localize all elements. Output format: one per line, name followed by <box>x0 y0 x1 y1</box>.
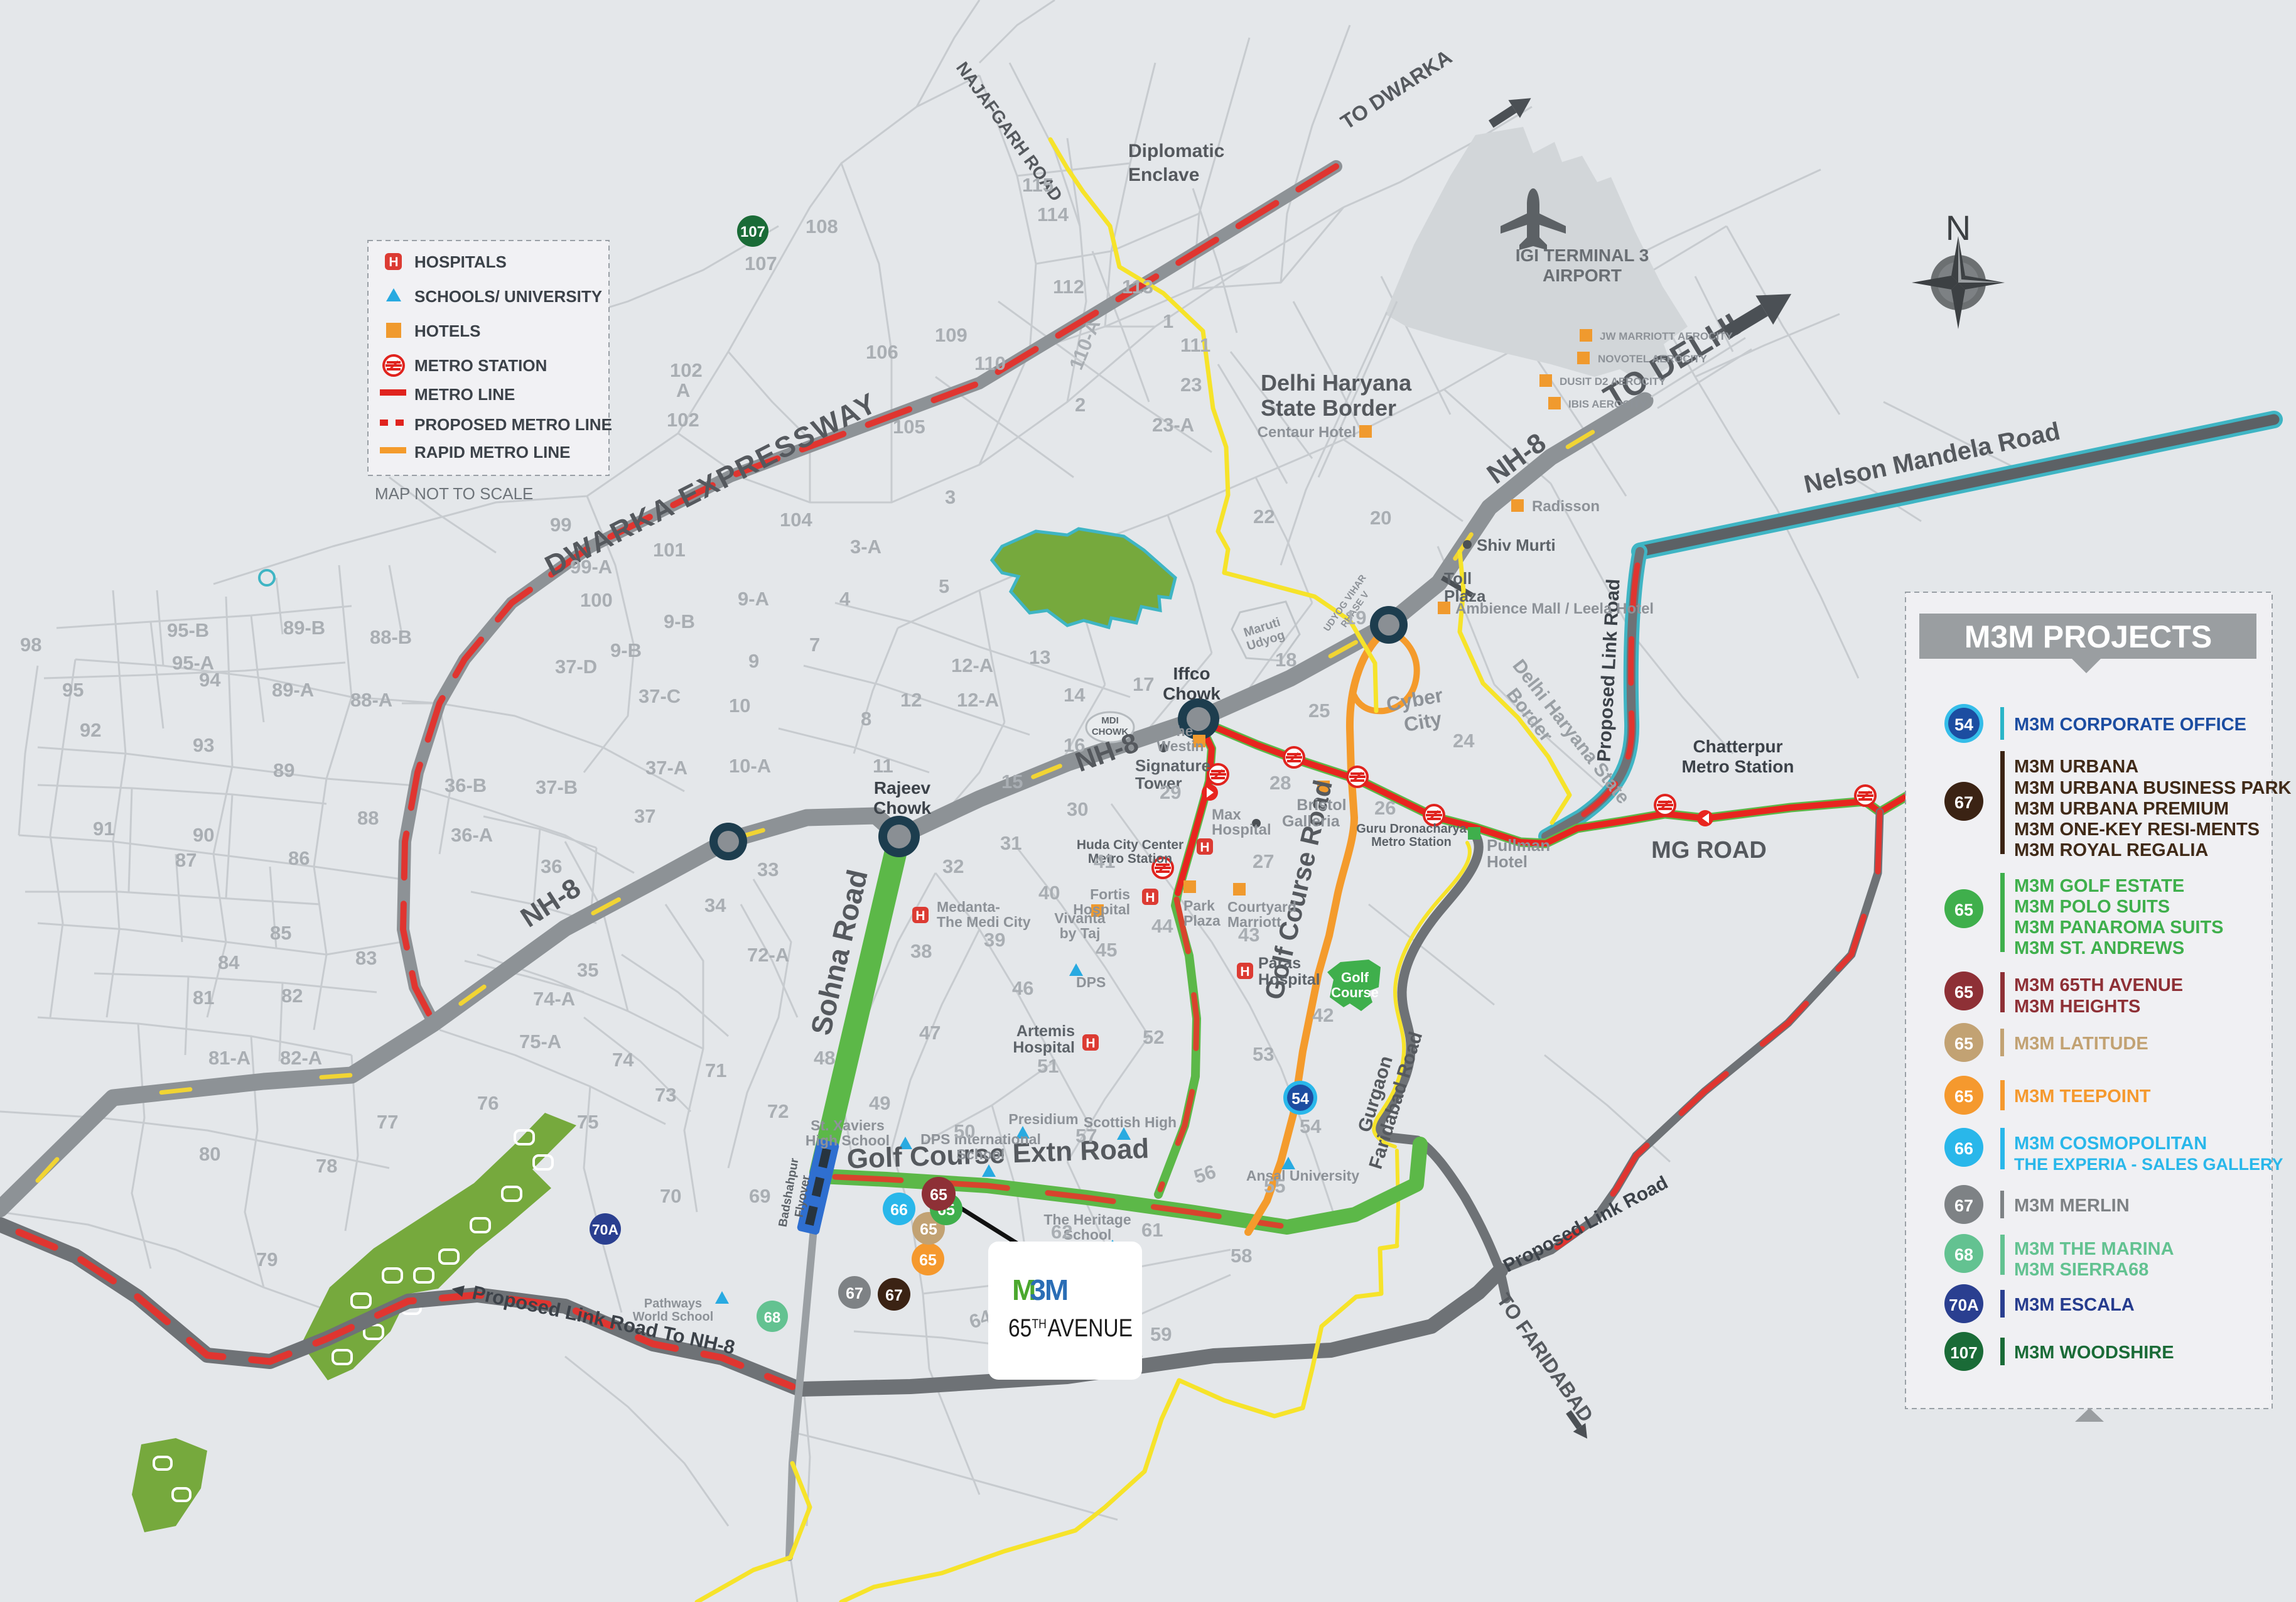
svg-text:37-B: 37-B <box>536 776 578 798</box>
svg-text:8: 8 <box>861 708 871 730</box>
svg-text:33: 33 <box>757 858 779 880</box>
svg-text:20: 20 <box>1370 507 1391 529</box>
svg-text:15: 15 <box>1001 771 1023 793</box>
svg-text:71: 71 <box>705 1059 726 1081</box>
svg-text:PROPOSED METRO LINE: PROPOSED METRO LINE <box>414 415 612 434</box>
svg-text:7: 7 <box>809 634 820 656</box>
svg-text:37-D: 37-D <box>555 656 597 678</box>
svg-text:58: 58 <box>1231 1245 1252 1267</box>
svg-text:34: 34 <box>704 894 726 916</box>
svg-text:51: 51 <box>1037 1055 1059 1077</box>
svg-text:M3M TEEPOINT: M3M TEEPOINT <box>2014 1086 2151 1107</box>
svg-text:113: 113 <box>1122 276 1153 298</box>
svg-text:111: 111 <box>1180 334 1210 356</box>
svg-text:89-B: 89-B <box>283 617 325 639</box>
svg-text:Max: Max <box>1212 806 1241 823</box>
svg-text:52: 52 <box>1143 1026 1164 1048</box>
svg-text:45: 45 <box>1096 939 1117 961</box>
svg-text:MG ROAD: MG ROAD <box>1651 837 1767 863</box>
svg-text:65: 65 <box>1954 1034 1973 1053</box>
svg-text:Radisson: Radisson <box>1532 498 1600 515</box>
svg-text:The: The <box>1168 723 1194 739</box>
svg-text:19: 19 <box>1345 607 1366 629</box>
svg-text:Hospital: Hospital <box>1212 821 1271 838</box>
svg-text:37-C: 37-C <box>639 685 681 707</box>
svg-text:38: 38 <box>910 940 932 962</box>
svg-text:74: 74 <box>612 1049 634 1071</box>
svg-text:62: 62 <box>1051 1221 1072 1243</box>
svg-text:114: 114 <box>1037 203 1069 225</box>
svg-text:102: 102 <box>670 359 703 381</box>
svg-text:M3M: M3M <box>1012 1274 1067 1306</box>
svg-text:70A: 70A <box>592 1221 618 1238</box>
svg-text:88-B: 88-B <box>370 626 412 648</box>
svg-text:87: 87 <box>175 849 197 871</box>
svg-text:Vivanta: Vivanta <box>1054 910 1106 926</box>
svg-text:Hotel: Hotel <box>1487 852 1528 871</box>
svg-text:N: N <box>1946 208 1971 247</box>
svg-text:41: 41 <box>1094 850 1115 872</box>
svg-text:9: 9 <box>748 650 759 672</box>
svg-text:57: 57 <box>1075 1125 1097 1147</box>
svg-text:80: 80 <box>199 1143 220 1165</box>
svg-text:36-A: 36-A <box>451 824 493 846</box>
svg-text:32: 32 <box>942 855 964 877</box>
svg-text:26: 26 <box>1374 797 1396 819</box>
svg-text:Pathways: Pathways <box>644 1297 702 1311</box>
svg-text:M3M COSMOPOLITAN: M3M COSMOPOLITAN <box>2014 1134 2207 1154</box>
svg-text:4: 4 <box>839 588 851 610</box>
svg-text:Centaur Hotel: Centaur Hotel <box>1258 424 1356 441</box>
svg-text:DPS: DPS <box>1076 974 1106 990</box>
svg-text:Westin: Westin <box>1157 738 1204 754</box>
svg-text:M3M LATITUDE: M3M LATITUDE <box>2014 1034 2148 1054</box>
svg-text:Diplomatic: Diplomatic <box>1128 141 1224 161</box>
svg-text:Ansal University: Ansal University <box>1246 1167 1359 1184</box>
svg-text:23: 23 <box>1180 374 1202 396</box>
svg-text:31: 31 <box>1000 832 1021 854</box>
svg-text:IBIS AEROCITY: IBIS AEROCITY <box>1568 398 1647 410</box>
svg-text:84: 84 <box>218 951 240 973</box>
svg-text:101: 101 <box>653 539 686 561</box>
svg-text:HOTELS: HOTELS <box>414 322 480 340</box>
svg-text:72-A: 72-A <box>747 944 789 966</box>
svg-text:24: 24 <box>1453 730 1475 752</box>
svg-text:108: 108 <box>806 215 838 237</box>
svg-text:HOSPITALS: HOSPITALS <box>414 252 507 271</box>
svg-text:65: 65 <box>1954 983 1973 1002</box>
svg-text:Metro Station: Metro Station <box>1371 835 1452 849</box>
svg-text:M3M URBANA PREMIUM: M3M URBANA PREMIUM <box>2014 799 2229 819</box>
svg-text:67: 67 <box>885 1287 903 1304</box>
svg-text:Iffco: Iffco <box>1173 664 1210 683</box>
svg-text:29: 29 <box>1160 781 1181 803</box>
svg-text:The Medi City: The Medi City <box>937 914 1031 930</box>
svg-text:Enclave: Enclave <box>1128 165 1199 185</box>
svg-text:METRO LINE: METRO LINE <box>414 385 515 404</box>
svg-text:Toll: Toll <box>1444 569 1472 588</box>
svg-text:107: 107 <box>745 252 777 274</box>
svg-text:World School: World School <box>633 1310 714 1324</box>
svg-text:115: 115 <box>1022 174 1054 196</box>
svg-text:1: 1 <box>1163 310 1173 332</box>
svg-text:Metro Station: Metro Station <box>1682 757 1794 776</box>
svg-text:72: 72 <box>767 1100 789 1122</box>
svg-text:11: 11 <box>873 755 893 777</box>
svg-text:17: 17 <box>1133 673 1154 695</box>
svg-text:Medanta-: Medanta- <box>937 899 1000 915</box>
svg-text:Scottish High: Scottish High <box>1084 1114 1177 1130</box>
svg-text:109: 109 <box>935 324 967 346</box>
svg-text:Presidium: Presidium <box>1008 1111 1078 1127</box>
svg-text:9-A: 9-A <box>738 588 769 610</box>
svg-text:70A: 70A <box>1949 1296 1979 1314</box>
svg-text:82-A: 82-A <box>280 1047 322 1069</box>
svg-text:SCHOOLS/ UNIVERSITY: SCHOOLS/ UNIVERSITY <box>414 287 602 306</box>
svg-text:85: 85 <box>270 922 291 944</box>
svg-text:90: 90 <box>193 824 214 846</box>
svg-text:106: 106 <box>866 341 898 363</box>
svg-text:36: 36 <box>541 855 562 877</box>
svg-text:M3M ONE-KEY RESI-MENTS: M3M ONE-KEY RESI-MENTS <box>2014 820 2260 840</box>
svg-text:75: 75 <box>577 1111 598 1133</box>
svg-text:M3M PROJECTS: M3M PROJECTS <box>1965 619 2212 654</box>
svg-text:112: 112 <box>1053 276 1084 298</box>
svg-text:78: 78 <box>316 1155 337 1177</box>
svg-text:99: 99 <box>550 514 571 536</box>
svg-text:Paras: Paras <box>1258 955 1301 972</box>
svg-text:Chowk: Chowk <box>1163 684 1221 703</box>
svg-text:93: 93 <box>193 734 214 756</box>
svg-text:25: 25 <box>1308 700 1330 722</box>
svg-text:Rajeev: Rajeev <box>874 778 931 798</box>
svg-text:65: 65 <box>920 1221 937 1238</box>
svg-text:70: 70 <box>660 1185 681 1207</box>
svg-text:89-A: 89-A <box>272 679 314 701</box>
svg-text:88: 88 <box>357 807 379 829</box>
svg-text:Bristol: Bristol <box>1296 796 1346 814</box>
svg-text:46: 46 <box>1012 977 1033 999</box>
svg-text:75-A: 75-A <box>519 1031 561 1053</box>
svg-text:Galleria: Galleria <box>1282 813 1340 830</box>
svg-text:JW MARRIOTT AEROCITY: JW MARRIOTT AEROCITY <box>1600 330 1733 342</box>
svg-text:10: 10 <box>729 695 750 717</box>
svg-text:28: 28 <box>1269 772 1291 794</box>
svg-text:13: 13 <box>1029 646 1050 668</box>
svg-text:9-B: 9-B <box>664 610 695 632</box>
svg-text:81-A: 81-A <box>208 1047 251 1069</box>
svg-text:M3M PANAROMA SUITS: M3M PANAROMA SUITS <box>2014 917 2224 938</box>
svg-text:50: 50 <box>954 1120 975 1142</box>
svg-text:67: 67 <box>1954 1196 1973 1215</box>
svg-text:65: 65 <box>1954 1087 1973 1106</box>
svg-text:MDI: MDI <box>1101 715 1119 726</box>
svg-text:79: 79 <box>256 1248 278 1270</box>
svg-text:9-B: 9-B <box>610 639 642 661</box>
svg-text:65THAVENUE: 65THAVENUE <box>1008 1314 1133 1342</box>
svg-text:THE EXPERIA - SALES GALLERY: THE EXPERIA - SALES GALLERY <box>2014 1155 2283 1174</box>
svg-text:99-A: 99-A <box>570 556 612 578</box>
svg-text:M3M URBANA: M3M URBANA <box>2014 757 2138 777</box>
svg-text:104: 104 <box>780 509 812 531</box>
svg-text:12-A: 12-A <box>957 689 999 711</box>
svg-text:98: 98 <box>20 634 41 656</box>
svg-text:86: 86 <box>288 847 310 869</box>
svg-text:Courtyard: Courtyard <box>1227 899 1296 915</box>
svg-text:83: 83 <box>355 947 377 969</box>
svg-text:M3M GOLF ESTATE: M3M GOLF ESTATE <box>2014 876 2184 896</box>
svg-text:Fortis: Fortis <box>1090 886 1130 902</box>
svg-text:DUSIT D2 AEROCITY: DUSIT D2 AEROCITY <box>1560 376 1666 387</box>
svg-text:Hospital: Hospital <box>1258 971 1320 988</box>
svg-text:AIRPORT: AIRPORT <box>1543 266 1622 285</box>
svg-text:3-A: 3-A <box>850 536 881 558</box>
svg-text:Ambience Mall / Leela Hotel: Ambience Mall / Leela Hotel <box>1455 600 1654 617</box>
svg-text:54: 54 <box>1291 1090 1309 1108</box>
svg-text:53: 53 <box>1253 1043 1274 1065</box>
svg-text:39: 39 <box>984 929 1005 951</box>
svg-text:M3M CORPORATE OFFICE: M3M CORPORATE OFFICE <box>2014 715 2246 735</box>
svg-text:81: 81 <box>193 987 214 1009</box>
svg-text:65: 65 <box>930 1186 947 1204</box>
svg-text:Delhi Haryana: Delhi Haryana <box>1261 370 1412 396</box>
svg-text:12: 12 <box>900 689 922 711</box>
svg-text:54: 54 <box>1300 1115 1322 1137</box>
svg-text:Golf: Golf <box>1341 970 1369 985</box>
svg-text:40: 40 <box>1038 882 1060 904</box>
svg-text:10-A: 10-A <box>729 755 771 777</box>
svg-text:IGI TERMINAL 3: IGI TERMINAL 3 <box>1516 246 1649 265</box>
svg-text:2: 2 <box>1075 394 1086 416</box>
svg-text:Shiv Murti: Shiv Murti <box>1477 536 1556 555</box>
svg-text:18: 18 <box>1275 649 1296 671</box>
svg-text:Artemis: Artemis <box>1016 1022 1075 1040</box>
svg-text:55: 55 <box>1264 1175 1285 1197</box>
svg-text:42: 42 <box>1312 1004 1334 1026</box>
svg-text:RAPID METRO LINE: RAPID METRO LINE <box>414 443 570 462</box>
svg-text:74-A: 74-A <box>533 988 575 1010</box>
svg-text:M3M ESCALA: M3M ESCALA <box>2014 1295 2135 1315</box>
svg-text:Huda City Center: Huda City Center <box>1077 838 1183 852</box>
svg-text:92: 92 <box>80 719 101 741</box>
svg-text:54: 54 <box>1954 715 1973 734</box>
svg-text:37-A: 37-A <box>645 757 687 779</box>
svg-text:M3M WOODSHIRE: M3M WOODSHIRE <box>2014 1343 2174 1363</box>
svg-text:89: 89 <box>273 759 294 781</box>
svg-text:102: 102 <box>667 409 699 431</box>
svg-text:67: 67 <box>846 1285 863 1302</box>
svg-text:95: 95 <box>62 679 84 701</box>
svg-text:43: 43 <box>1238 924 1259 946</box>
svg-text:95-B: 95-B <box>167 619 209 641</box>
svg-text:Chatterpur: Chatterpur <box>1693 737 1782 756</box>
svg-text:M3M POLO SUITS: M3M POLO SUITS <box>2014 897 2170 917</box>
svg-text:27: 27 <box>1253 850 1274 872</box>
svg-text:65: 65 <box>1954 901 1973 919</box>
svg-text:State Border: State Border <box>1261 395 1396 421</box>
svg-text:65: 65 <box>919 1252 937 1269</box>
svg-text:5: 5 <box>939 575 949 597</box>
svg-text:73: 73 <box>655 1084 676 1106</box>
svg-text:Chowk: Chowk <box>873 798 931 818</box>
svg-text:67: 67 <box>1954 793 1973 812</box>
svg-text:M3M ROYAL REGALIA: M3M ROYAL REGALIA <box>2014 840 2208 860</box>
svg-text:110: 110 <box>974 352 1006 374</box>
svg-text:M3M ST. ANDREWS: M3M ST. ANDREWS <box>2014 938 2184 958</box>
svg-text:NOVOTEL AEROCITY: NOVOTEL AEROCITY <box>1598 353 1707 365</box>
svg-text:METRO STATION: METRO STATION <box>414 356 547 375</box>
svg-text:M3M URBANA BUSINESS PARK: M3M URBANA BUSINESS PARK <box>2014 778 2292 798</box>
svg-text:37: 37 <box>634 805 655 827</box>
svg-text:3: 3 <box>945 486 956 508</box>
svg-text:M3M THE MARINA: M3M THE MARINA <box>2014 1239 2174 1259</box>
svg-text:16: 16 <box>1064 734 1085 756</box>
svg-text:DPS International: DPS International <box>920 1131 1041 1147</box>
svg-text:14: 14 <box>1064 684 1086 706</box>
svg-text:76: 76 <box>477 1092 499 1114</box>
svg-text:by Taj: by Taj <box>1060 925 1101 941</box>
svg-text:MAP NOT TO SCALE: MAP NOT TO SCALE <box>375 484 533 503</box>
svg-text:Hospital: Hospital <box>1013 1039 1075 1056</box>
svg-text:105: 105 <box>893 416 925 438</box>
svg-text:Park: Park <box>1183 897 1215 914</box>
svg-text:36-B: 36-B <box>445 774 487 796</box>
svg-text:44: 44 <box>1151 915 1173 937</box>
svg-text:St. Xaviers: St. Xaviers <box>811 1117 885 1134</box>
svg-text:66: 66 <box>1954 1139 1973 1158</box>
svg-text:48: 48 <box>814 1047 835 1069</box>
svg-text:88-A: 88-A <box>350 689 392 711</box>
svg-text:107: 107 <box>1950 1343 1977 1362</box>
svg-text:12-A: 12-A <box>951 654 993 676</box>
svg-text:66: 66 <box>890 1201 908 1219</box>
svg-text:M3M 65TH AVENUE: M3M 65TH AVENUE <box>2014 975 2183 995</box>
svg-text:94: 94 <box>199 669 221 691</box>
svg-text:A: A <box>676 379 690 401</box>
svg-text:22: 22 <box>1253 506 1275 528</box>
svg-text:61: 61 <box>1141 1219 1163 1241</box>
svg-text:68: 68 <box>1954 1245 1973 1264</box>
svg-text:91: 91 <box>93 818 114 840</box>
svg-text:Guru Dronacharya: Guru Dronacharya <box>1356 822 1467 836</box>
svg-text:Signature: Signature <box>1135 756 1210 775</box>
svg-text:69: 69 <box>749 1185 770 1207</box>
svg-text:Plaza: Plaza <box>1183 912 1221 929</box>
svg-text:100: 100 <box>580 589 613 611</box>
svg-text:M3M MERLIN: M3M MERLIN <box>2014 1196 2130 1216</box>
svg-text:77: 77 <box>377 1111 398 1133</box>
svg-text:H: H <box>389 255 398 269</box>
svg-text:Course: Course <box>1331 985 1379 1000</box>
svg-text:M3M SIERRA68: M3M SIERRA68 <box>2014 1260 2148 1280</box>
svg-text:107: 107 <box>740 224 765 241</box>
svg-text:30: 30 <box>1067 798 1088 820</box>
svg-text:23-A: 23-A <box>1152 414 1194 436</box>
svg-text:59: 59 <box>1150 1323 1172 1345</box>
svg-text:35: 35 <box>577 959 598 981</box>
svg-text:High School: High School <box>806 1132 890 1149</box>
svg-text:49: 49 <box>869 1092 890 1114</box>
svg-text:School: School <box>957 1146 1005 1162</box>
svg-text:M3M HEIGHTS: M3M HEIGHTS <box>2014 997 2140 1017</box>
svg-text:82: 82 <box>281 985 303 1007</box>
svg-text:47: 47 <box>919 1022 940 1044</box>
svg-text:68: 68 <box>764 1309 781 1326</box>
